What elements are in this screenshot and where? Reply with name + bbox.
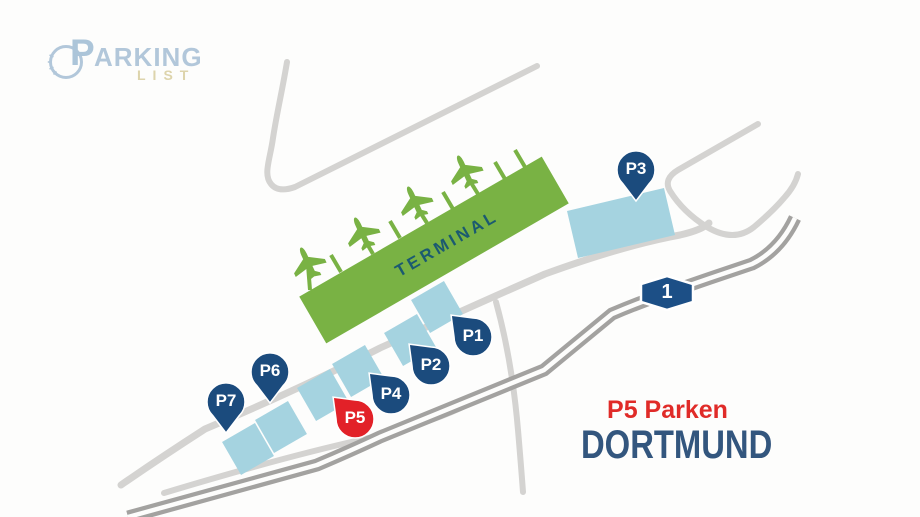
pin-label-p1: P1 [449, 326, 497, 346]
parkinglist-logo: P ARKING LIST [44, 36, 224, 96]
route-badge-1: 1 [639, 274, 695, 312]
parking-pin-p3[interactable]: P3 [612, 146, 660, 204]
airplane-icon [442, 148, 487, 193]
pin-label-p5: P5 [331, 408, 379, 428]
parking-pin-p1[interactable]: P1 [449, 313, 497, 371]
logo-p-letter: P [70, 32, 95, 74]
pin-label-p7: P7 [202, 391, 250, 411]
caption-parking-name: P5 Parken [560, 396, 775, 425]
airplane-icon [392, 179, 437, 224]
caption-city-name: DORTMUND [581, 425, 772, 465]
screenshot-root: P ARKING LIST TERMINAL P1P2P3P4P5P6P7 1 … [0, 0, 920, 517]
route-badge-label: 1 [639, 281, 695, 304]
pin-label-p3: P3 [612, 159, 660, 179]
pin-label-p6: P6 [246, 361, 294, 381]
road-south-spur [496, 302, 523, 492]
parking-pin-p6[interactable]: P6 [246, 348, 294, 406]
parking-pin-p7[interactable]: P7 [202, 378, 250, 436]
road-north-curve [267, 62, 537, 189]
road-p3-loop [668, 124, 798, 235]
logo-subtitle: LIST [137, 67, 195, 83]
airplane-icon [285, 240, 330, 285]
parking-pin-p5[interactable]: P5 [331, 395, 379, 453]
caption: P5 Parken DORTMUND [560, 396, 775, 465]
airplane-icon [339, 210, 384, 255]
